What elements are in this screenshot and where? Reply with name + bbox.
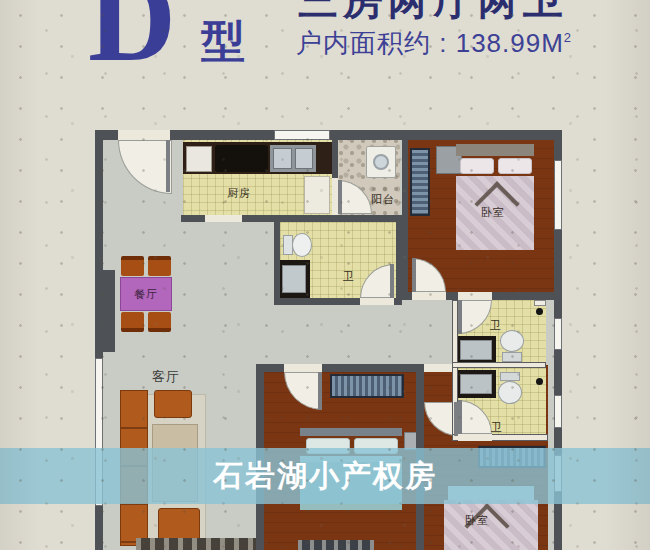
passage-opening	[424, 364, 452, 372]
armchair	[154, 390, 192, 418]
door-opening	[458, 292, 492, 300]
vent-fixture	[534, 300, 546, 306]
door-opening	[284, 364, 322, 372]
living-label: 客厅	[152, 368, 180, 386]
bedroom3-door-leaf	[454, 402, 458, 436]
unit-type-suffix: 型	[201, 12, 245, 71]
kitchen-opening	[205, 215, 242, 222]
window	[554, 395, 562, 428]
cutoff-title-text: 三房两厅两卫	[298, 0, 568, 28]
bathB-label: 卫	[491, 420, 503, 435]
window	[274, 130, 330, 140]
sink-basin	[295, 148, 313, 169]
kitchen-label: 厨房	[227, 186, 251, 201]
bathB-door-leaf	[458, 400, 462, 434]
bathA-label: 卫	[490, 318, 502, 333]
wall	[402, 138, 408, 298]
floor-drain	[536, 378, 543, 385]
balcony-door-leaf	[338, 180, 342, 214]
wall	[256, 364, 424, 372]
kitchen-cabinet	[304, 176, 330, 214]
area-value: 户内面积约 : 138.99M	[296, 28, 564, 58]
bed-headboard	[300, 428, 402, 436]
door-opening	[360, 298, 394, 305]
dining-chair	[121, 256, 144, 276]
wall	[274, 222, 280, 298]
bed-headboard	[456, 144, 534, 156]
floorplan-photo: 三房两厅两卫 D 型 户内面积约 : 138.99M2	[0, 0, 650, 550]
door-opening	[458, 434, 492, 441]
toilet-bowl	[292, 233, 312, 257]
bath1-door-leaf	[390, 264, 394, 298]
pillow	[498, 158, 532, 174]
entry-opening	[118, 130, 170, 140]
wall-pier	[103, 270, 115, 352]
toilet-tank	[502, 352, 522, 362]
toilet-tank	[500, 372, 520, 381]
tv-cabinet	[136, 538, 262, 550]
wall	[452, 362, 546, 368]
dining-chair	[121, 312, 144, 332]
vanity-sink	[460, 374, 492, 394]
pillow	[460, 158, 494, 174]
dining-label: 餐厅	[134, 288, 158, 300]
fridge	[186, 146, 212, 172]
vanity-sink	[460, 340, 492, 360]
bedroom2-door-leaf	[318, 372, 322, 410]
door-opening	[412, 292, 446, 300]
dining-chair	[148, 256, 171, 276]
sink-basin	[273, 148, 292, 169]
vanity-sink	[282, 265, 306, 293]
bathA-door-leaf	[458, 300, 462, 334]
dining-table: 餐厅	[120, 277, 172, 311]
balcony-label: 阳台	[371, 192, 395, 207]
bedroom3-label: 卧室	[465, 513, 489, 528]
unit-letter: D	[88, 0, 176, 80]
toilet-bowl	[498, 381, 522, 404]
bath1-label: 卫	[343, 269, 355, 284]
area-text: 户内面积约 : 138.99M2	[296, 26, 572, 61]
wardrobe	[410, 148, 430, 216]
toilet-bowl	[500, 330, 524, 352]
bedroom1-door-leaf	[412, 258, 416, 292]
watermark-text: 石岩湖小产权房	[213, 459, 437, 492]
dining-chair	[148, 312, 171, 332]
wardrobe	[330, 374, 404, 398]
entry-door-leaf	[166, 140, 170, 192]
area-superscript: 2	[564, 30, 572, 45]
watermark-banner: 石岩湖小产权房	[0, 448, 650, 504]
window	[554, 160, 562, 230]
dresser	[298, 540, 374, 550]
door-opening	[332, 178, 338, 215]
floor-drain	[536, 308, 543, 315]
window	[554, 318, 562, 350]
washing-machine-door	[373, 154, 389, 170]
stove	[215, 145, 268, 172]
bedroom1-label: 卧室	[481, 205, 505, 220]
